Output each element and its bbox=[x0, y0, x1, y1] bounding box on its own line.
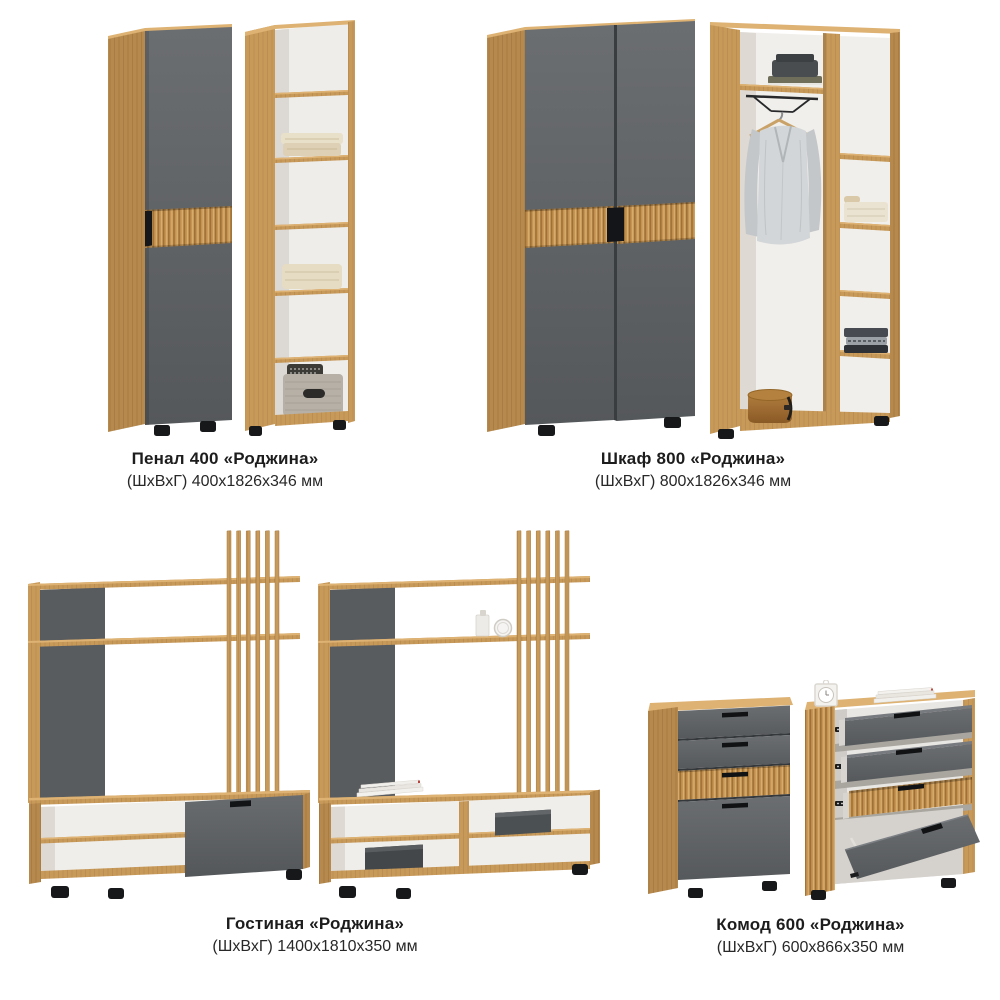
flap-door bbox=[678, 796, 790, 880]
product-card-penal-400: Пенал 400 «Роджина» (ШхВхГ) 400х1826х346… bbox=[90, 12, 360, 492]
foot bbox=[200, 421, 216, 432]
render-penal-closed bbox=[108, 24, 232, 436]
render-gostinaya-open bbox=[318, 531, 600, 899]
product-title: Комод 600 «Роджина» bbox=[716, 914, 904, 935]
product-title: Шкаф 800 «Роджина» bbox=[595, 448, 791, 469]
fluted-handle-strip bbox=[145, 206, 232, 248]
product-caption: Пенал 400 «Роджина» (ШхВхГ) 400х1826х346… bbox=[127, 448, 323, 492]
foot bbox=[333, 420, 346, 430]
product-figure-komod bbox=[638, 680, 983, 908]
foot bbox=[286, 869, 302, 880]
foot bbox=[718, 429, 734, 439]
product-caption: Гостиная «Роджина» (ШхВхГ) 1400х1810х350… bbox=[212, 913, 417, 957]
render-gostinaya bbox=[25, 522, 605, 907]
foot bbox=[108, 888, 124, 899]
product-card-shkaf-800: Шкаф 800 «Роджина» (ШхВхГ) 800х1826х346 … bbox=[478, 10, 908, 492]
decor-perfume-and-clock bbox=[476, 610, 512, 637]
product-figure-penal bbox=[90, 12, 360, 442]
divider bbox=[459, 801, 469, 873]
product-caption: Шкаф 800 «Роджина» (ШхВхГ) 800х1826х346 … bbox=[595, 448, 791, 492]
fluted-handle-strip bbox=[525, 206, 614, 248]
product-dimensions: (ШхВхГ) 400х1826х346 мм bbox=[127, 472, 323, 492]
vertical-slats bbox=[227, 531, 279, 795]
foot bbox=[874, 416, 889, 426]
render-komod-closed bbox=[648, 697, 793, 898]
foot bbox=[572, 864, 588, 875]
foot bbox=[154, 425, 170, 436]
product-caption: Комод 600 «Роджина» (ШхВхГ) 600х866х350 … bbox=[716, 914, 904, 958]
product-title: Пенал 400 «Роджина» bbox=[127, 448, 323, 469]
hat-box bbox=[748, 390, 792, 424]
decor-alarm-clock bbox=[815, 680, 837, 706]
folded-towels bbox=[281, 133, 343, 156]
door-handles bbox=[607, 207, 624, 242]
product-dimensions: (ШхВхГ) 600х866х350 мм bbox=[716, 938, 904, 958]
product-dimensions: (ШхВхГ) 1400х1810х350 мм bbox=[212, 937, 417, 957]
render-komod-open bbox=[805, 680, 980, 900]
render-gostinaya-closed bbox=[28, 531, 310, 899]
foot bbox=[941, 878, 956, 888]
back-panel-gray bbox=[330, 587, 395, 801]
product-dimensions: (ШхВхГ) 800х1826х346 мм bbox=[595, 472, 791, 492]
folded-jeans-side bbox=[844, 328, 888, 353]
render-shkaf bbox=[478, 10, 908, 442]
foot bbox=[538, 425, 555, 436]
product-card-gostinaya: Гостиная «Роджина» (ШхВхГ) 1400х1810х350… bbox=[25, 522, 605, 957]
hanging-blouse bbox=[744, 126, 821, 245]
render-shkaf-open bbox=[710, 22, 900, 439]
door-handle-groove bbox=[145, 211, 152, 247]
render-penal-open bbox=[245, 20, 355, 436]
folded-blanket bbox=[282, 264, 342, 289]
foot bbox=[688, 888, 703, 898]
foot bbox=[762, 881, 777, 891]
foot bbox=[339, 886, 356, 898]
vertical-slats bbox=[517, 531, 569, 795]
product-card-komod-600: Комод 600 «Роджина» (ШхВхГ) 600х866х350 … bbox=[638, 680, 983, 958]
render-penal bbox=[90, 12, 360, 442]
render-komod bbox=[638, 680, 983, 908]
fluted-handle-strip bbox=[617, 202, 695, 244]
foot bbox=[396, 888, 411, 899]
foot bbox=[249, 426, 262, 436]
folded-clothes-top bbox=[768, 54, 822, 85]
foot bbox=[664, 417, 681, 428]
product-figure-gostinaya bbox=[25, 522, 605, 907]
render-shkaf-closed bbox=[487, 19, 695, 436]
product-figure-shkaf bbox=[478, 10, 908, 442]
back-panel-gray bbox=[40, 587, 105, 801]
foot bbox=[51, 886, 69, 898]
cabinet-door bbox=[185, 795, 303, 877]
door-handle bbox=[230, 800, 251, 807]
foot bbox=[811, 890, 826, 900]
product-title: Гостиная «Роджина» bbox=[212, 913, 417, 934]
